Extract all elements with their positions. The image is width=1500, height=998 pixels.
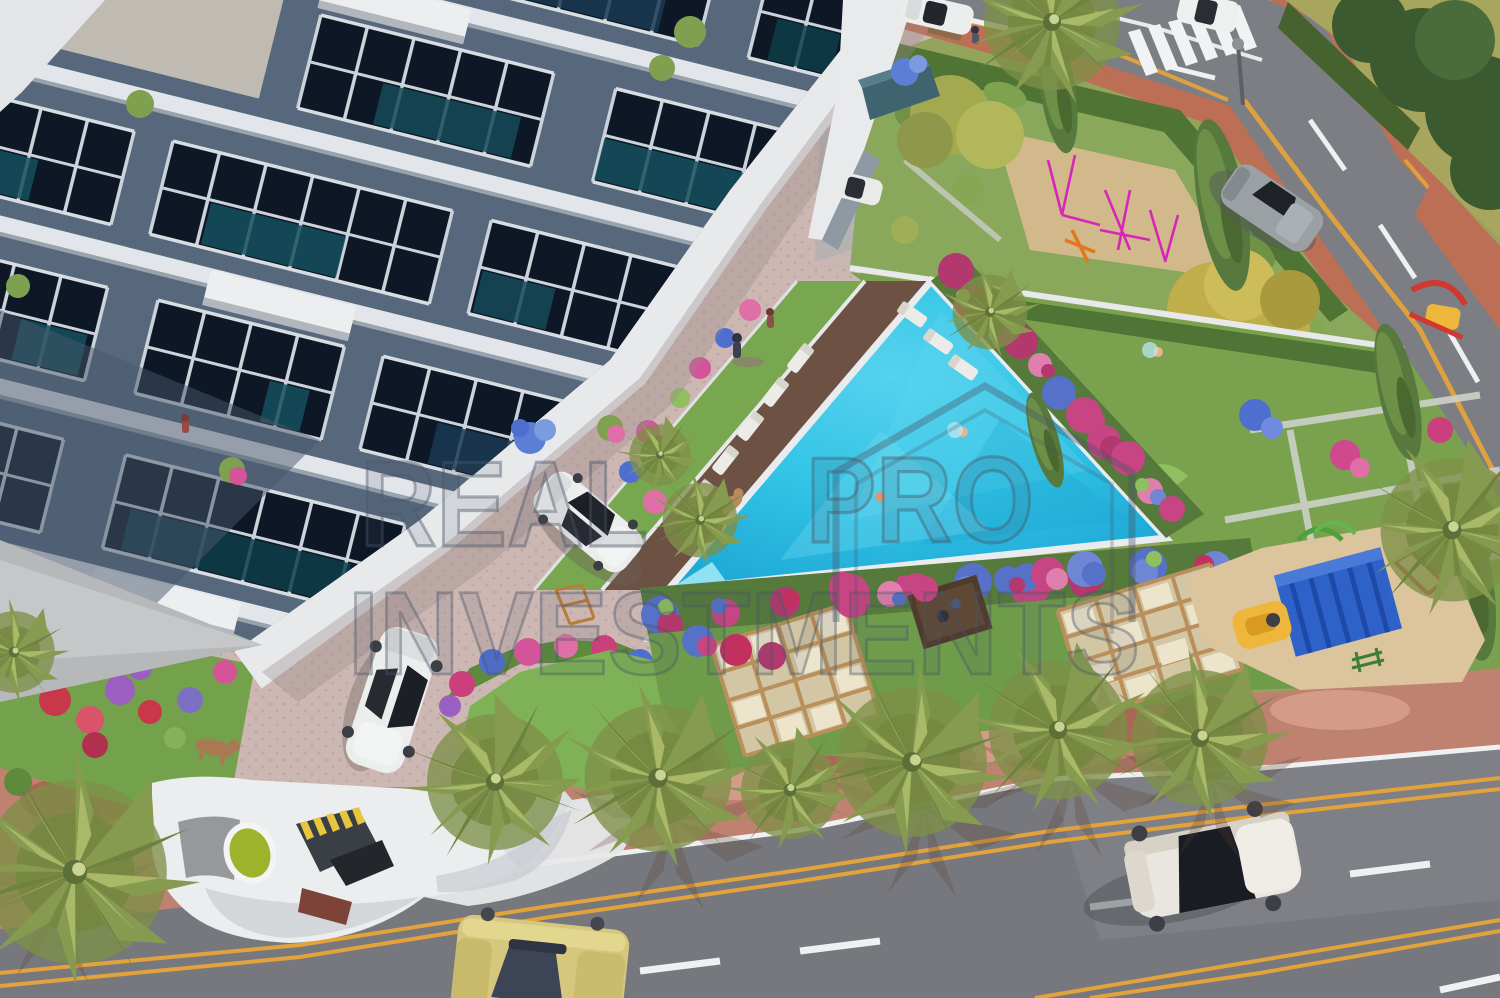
svg-text:PRO: PRO [806, 432, 1034, 568]
svg-text:REAL: REAL [360, 436, 648, 572]
svg-text:INVESTMENTS: INVESTMENTS [348, 568, 1140, 700]
